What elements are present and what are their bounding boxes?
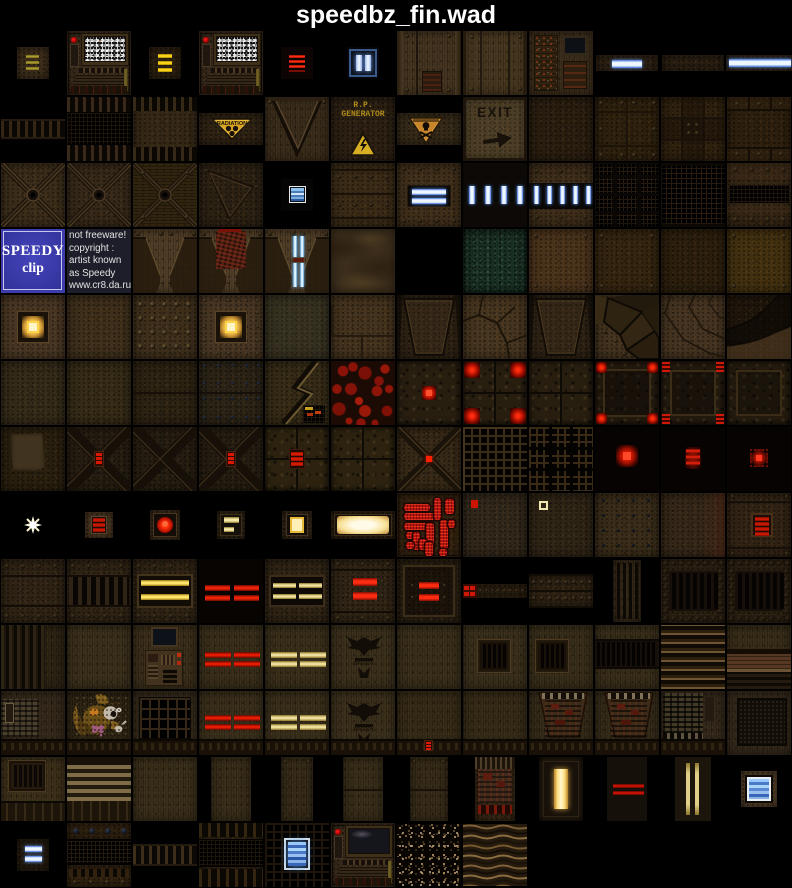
svg-text:SPEEDY: SPEEDY — [354, 661, 375, 667]
svg-text:SPEEDY: SPEEDY — [354, 727, 375, 733]
svg-text:RADIATION: RADIATION — [217, 121, 247, 127]
